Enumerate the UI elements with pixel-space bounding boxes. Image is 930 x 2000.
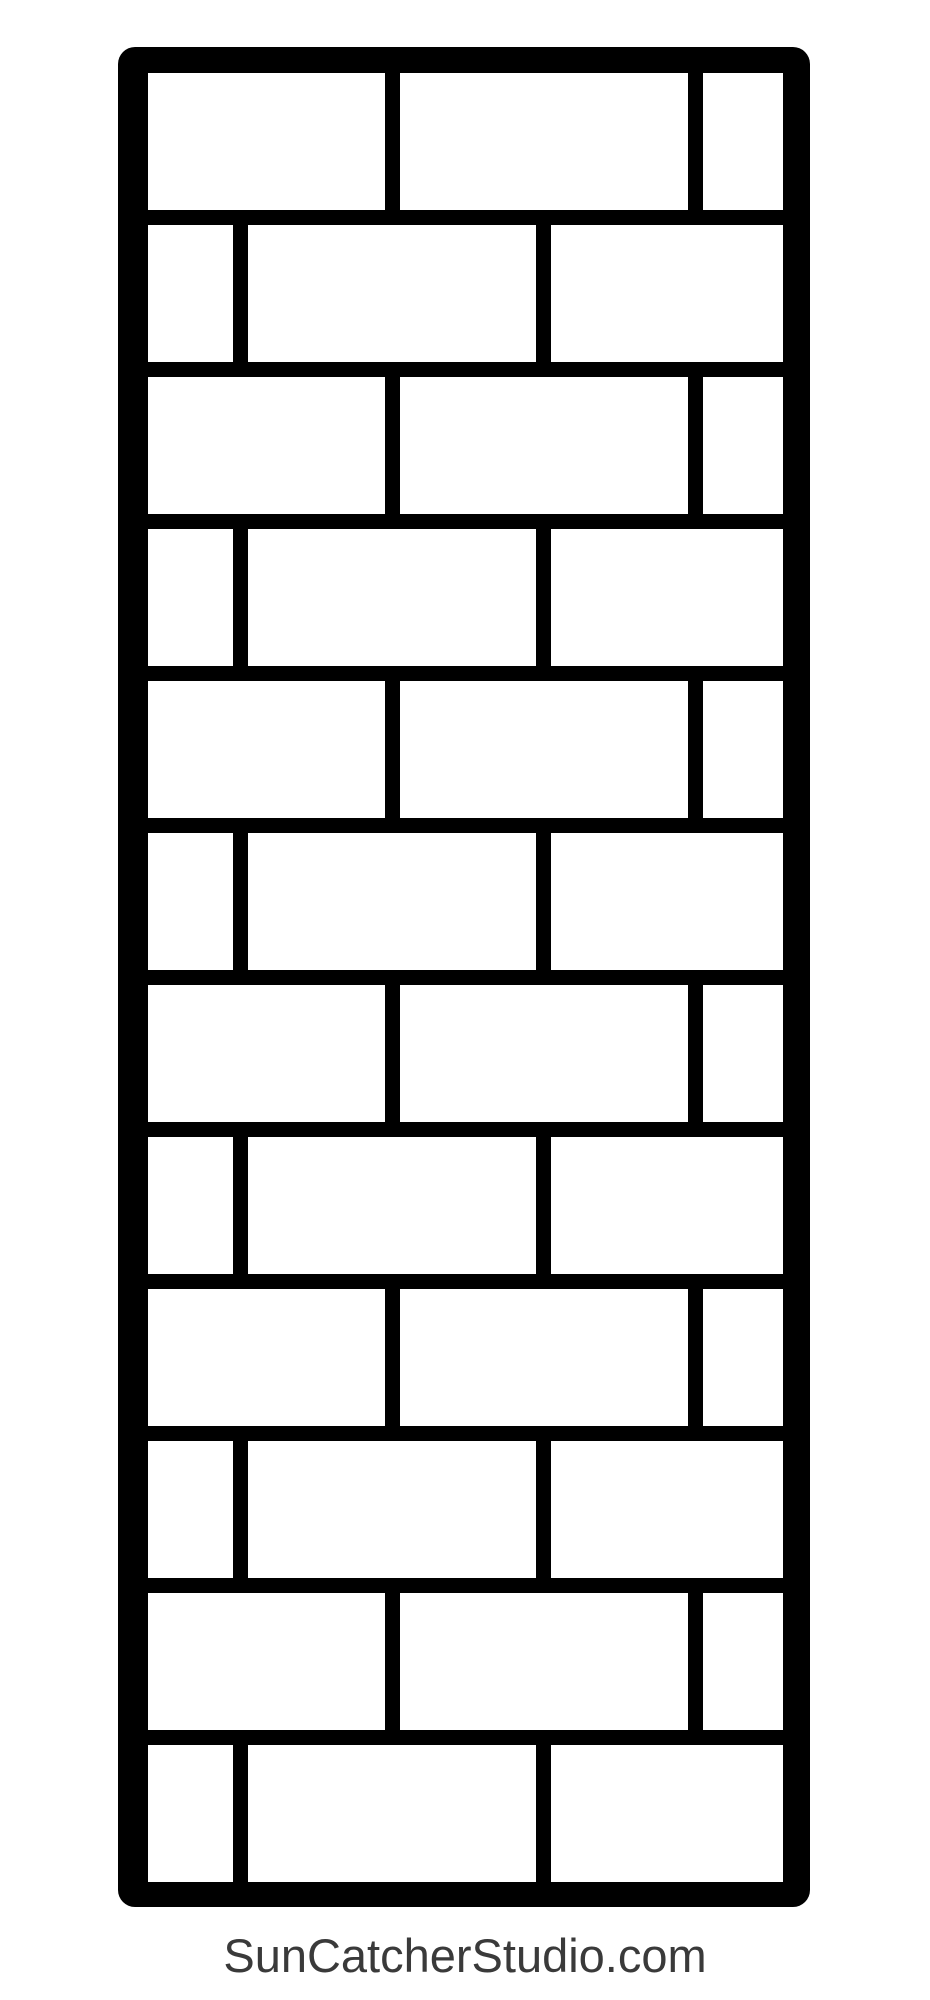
brick	[703, 1289, 783, 1426]
brick	[148, 73, 385, 210]
brick	[703, 1593, 783, 1730]
brick	[248, 529, 536, 666]
brick	[400, 73, 688, 210]
brick	[248, 1441, 536, 1578]
brick	[148, 377, 385, 514]
brick	[148, 529, 233, 666]
brick	[148, 1593, 385, 1730]
brick	[400, 985, 688, 1122]
brick	[551, 1441, 783, 1578]
brick	[551, 529, 783, 666]
brick	[148, 985, 385, 1122]
brick	[551, 225, 783, 362]
watermark-text: SunCatcherStudio.com	[0, 1928, 930, 1983]
brick	[703, 73, 783, 210]
brick	[400, 1289, 688, 1426]
brick	[148, 1137, 233, 1274]
brick-wall-pattern	[118, 47, 810, 1907]
brick	[551, 1745, 783, 1882]
page-canvas: SunCatcherStudio.com	[0, 0, 930, 2000]
brick	[551, 833, 783, 970]
brick	[248, 1137, 536, 1274]
brick	[148, 681, 385, 818]
brick	[400, 681, 688, 818]
brick	[248, 1745, 536, 1882]
brick	[703, 681, 783, 818]
brick	[248, 225, 536, 362]
brick	[400, 377, 688, 514]
brick	[703, 377, 783, 514]
brick	[148, 1441, 233, 1578]
brick	[148, 225, 233, 362]
brick	[148, 833, 233, 970]
brick	[248, 833, 536, 970]
brick	[148, 1289, 385, 1426]
brick	[148, 1745, 233, 1882]
brick	[400, 1593, 688, 1730]
brick	[703, 985, 783, 1122]
brick	[551, 1137, 783, 1274]
